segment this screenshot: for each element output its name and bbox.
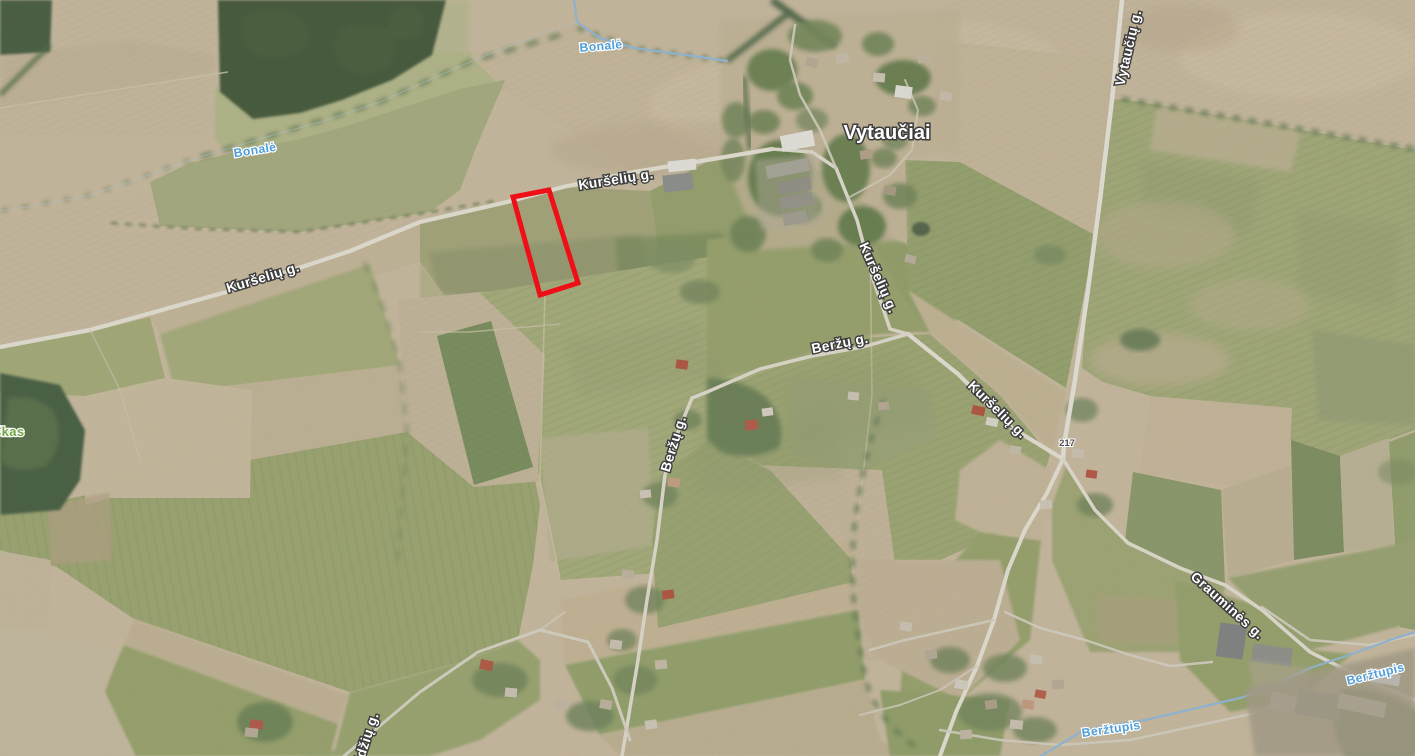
svg-text:miškas: miškas <box>0 424 25 439</box>
svg-text:Vytaučiai: Vytaučiai <box>843 122 930 144</box>
svg-text:217: 217 <box>1059 438 1075 449</box>
